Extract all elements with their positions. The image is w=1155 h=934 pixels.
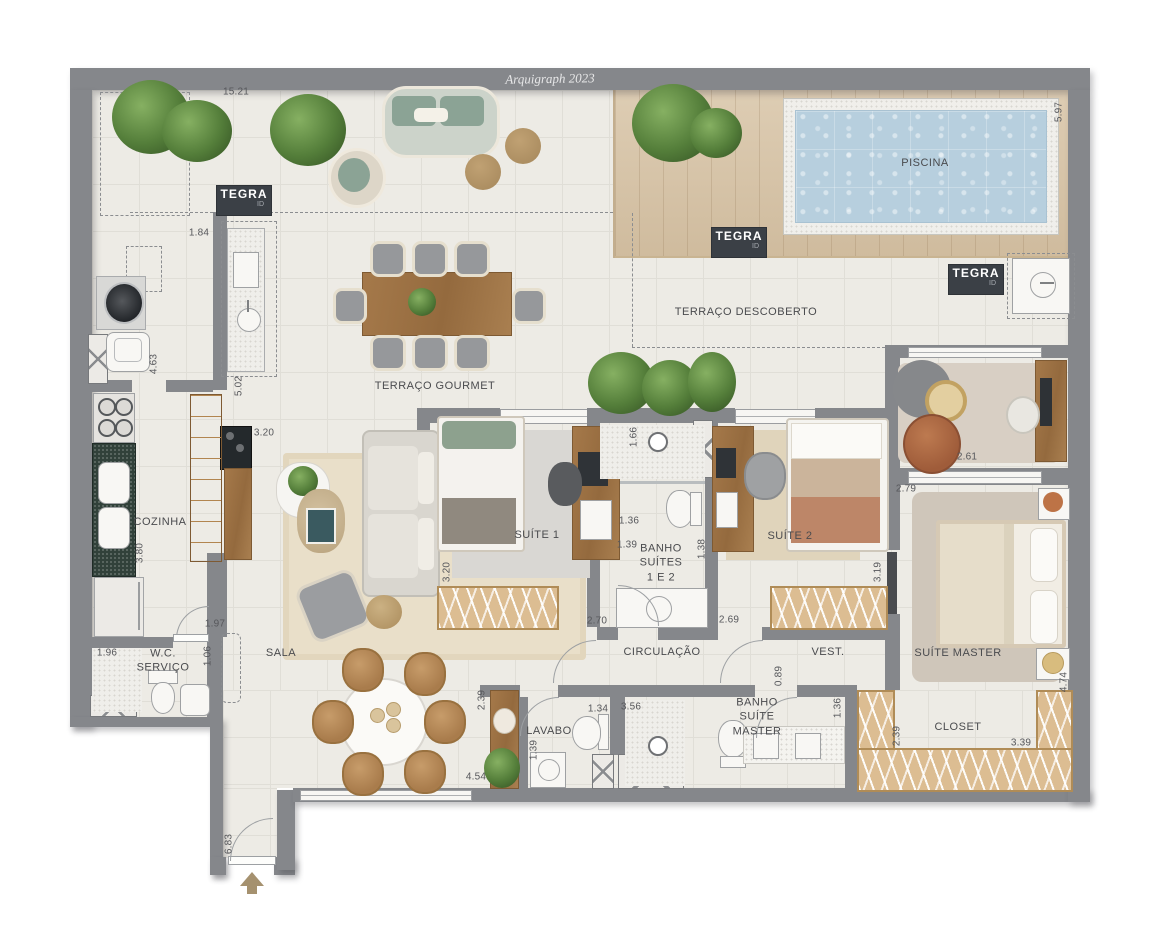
- sink-icon: [98, 507, 130, 549]
- room-label-terraco-gourmet: TERRAÇO GOURMET: [375, 379, 496, 393]
- dim-label: 1.36: [619, 516, 639, 527]
- wall-segment: [166, 380, 213, 392]
- pouf: [366, 595, 402, 629]
- plant-icon: [484, 748, 520, 788]
- wardrobe: [770, 586, 888, 630]
- dim-label: 2.79: [896, 484, 916, 495]
- room-label-wc-servico: W.C. SERVIÇO: [137, 647, 190, 676]
- cup: [370, 708, 385, 723]
- projection-line: [632, 213, 633, 347]
- shower-head-icon: [648, 736, 668, 756]
- fridge-handle: [138, 582, 140, 630]
- brand-id: ID: [712, 243, 766, 250]
- room-label-vest: VEST.: [811, 645, 844, 659]
- dim-label: 3.19: [873, 562, 884, 582]
- wall-segment: [845, 690, 857, 788]
- blanket-fold: [1004, 524, 1014, 644]
- dim-label: 4.63: [149, 354, 160, 374]
- dining-chair: [333, 288, 367, 324]
- toilet-icon: [572, 716, 601, 750]
- dim-label: 2.39: [892, 726, 903, 746]
- sofa-pillow: [418, 518, 434, 570]
- island-sink: [237, 308, 261, 332]
- wicker-chair: [404, 652, 446, 696]
- wall-segment: [70, 717, 223, 727]
- sink-icon: [180, 684, 210, 716]
- sink-icon: [795, 733, 821, 759]
- tegra-logo: TEGRA ID: [712, 228, 766, 257]
- tegra-logo: TEGRA ID: [217, 186, 271, 215]
- dining-chair: [512, 288, 546, 324]
- counter: [224, 468, 252, 560]
- dim-label: 6.83: [224, 834, 235, 854]
- wall-segment: [597, 627, 618, 640]
- sink-icon: [538, 759, 560, 781]
- dim-label: 2.69: [719, 615, 739, 626]
- brand-name: TEGRA: [217, 187, 271, 201]
- centerpiece-plant-icon: [408, 288, 436, 316]
- plant-icon: [690, 108, 742, 158]
- plant-icon: [270, 94, 346, 166]
- wall-segment: [210, 727, 223, 875]
- dim-label: 1.39: [529, 740, 540, 760]
- laundry-sink-basin: [114, 338, 142, 362]
- books: [716, 492, 738, 528]
- cabinet-outline: [221, 633, 241, 703]
- toilet-icon: [151, 682, 175, 714]
- sofa-cushion: [368, 446, 418, 510]
- lounge-chair: [903, 414, 961, 474]
- dim-label: 4.54: [466, 772, 486, 783]
- bed-blanket: [791, 459, 880, 497]
- dining-chair: [412, 241, 448, 277]
- dining-chair: [370, 335, 406, 371]
- dining-chair: [412, 335, 448, 371]
- bed-pillow: [442, 421, 516, 449]
- laptop-icon: [716, 448, 736, 478]
- door-leaf-master: [887, 552, 897, 614]
- shower-head-icon: [648, 432, 668, 452]
- burner-icon: [115, 419, 133, 437]
- faucet-icon: [1040, 282, 1054, 284]
- floor-plan: TEGRA ID TEGRA ID TEGRA ID Arquigraph 20…: [0, 0, 1155, 934]
- dim-label: 1.36: [833, 698, 844, 718]
- island-counter: [227, 228, 265, 372]
- window-sitting: [908, 347, 1042, 358]
- closet-wardrobe: [857, 690, 895, 752]
- closet-wardrobe: [1036, 690, 1073, 752]
- bed-pillow: [791, 423, 882, 459]
- desk-chair: [744, 452, 786, 500]
- wall-segment: [277, 790, 295, 870]
- window-sala: [300, 790, 472, 801]
- wicker-chair: [404, 750, 446, 794]
- dining-table: [362, 272, 512, 336]
- sofa-pillow: [418, 452, 434, 504]
- dim-label: 1.34: [588, 704, 608, 715]
- room-label-suite-master: SUÍTE MASTER: [914, 646, 1001, 660]
- wall-segment: [70, 90, 92, 727]
- pouf: [505, 128, 541, 164]
- cup: [386, 718, 401, 733]
- faucet-icon: [247, 300, 249, 312]
- dim-label: 2.70: [587, 616, 607, 627]
- dining-chair: [370, 241, 406, 277]
- brand-id: ID: [949, 280, 1003, 287]
- dim-label: 2.39: [477, 690, 488, 710]
- dim-label: 5.02: [234, 376, 245, 396]
- wardrobe: [437, 586, 559, 630]
- dim-label: 5.97: [1054, 102, 1065, 122]
- hanging-chair-cushion: [338, 158, 370, 192]
- dim-label: 1.39: [617, 540, 637, 551]
- wicker-chair: [312, 700, 354, 744]
- burner-icon: [98, 419, 116, 437]
- brand-id: ID: [217, 201, 271, 208]
- room-label-suite-1: SUÍTE 1: [514, 528, 559, 542]
- room-label-banho-suites: BANHO SUÍTES 1 E 2: [640, 542, 683, 585]
- dim-label: 3.20: [254, 428, 274, 439]
- dim-label: 1.06: [203, 646, 214, 666]
- pantry-cabinet: [190, 394, 222, 562]
- books: [580, 500, 612, 540]
- tv-icon: [1040, 378, 1052, 426]
- nightstand-decor: [1042, 652, 1064, 674]
- closet-wardrobe: [857, 748, 1073, 792]
- dining-chair: [454, 241, 490, 277]
- washer-door: [104, 282, 144, 324]
- dim-label: 1.66: [629, 427, 640, 447]
- dim-label: 1.96: [97, 648, 117, 659]
- door-leaf: [173, 634, 209, 642]
- shaft-icon: [88, 334, 108, 384]
- bed-pillow: [1030, 528, 1058, 582]
- dim-label: 3.39: [1011, 738, 1031, 749]
- wicker-chair: [342, 648, 384, 692]
- sofa-pillow: [414, 108, 448, 122]
- tray: [306, 508, 336, 544]
- dim-label: 2.61: [957, 452, 977, 463]
- room-label-suite-2: SUÍTE 2: [767, 529, 812, 543]
- fridge: [94, 577, 144, 637]
- wicker-chair: [424, 700, 466, 744]
- wall-segment: [558, 685, 610, 697]
- dim-label: 1.84: [189, 228, 209, 239]
- dim-label: 15.21: [223, 87, 249, 98]
- desk-chair: [548, 462, 582, 506]
- wall-segment: [210, 857, 226, 875]
- entry-arrow-stem: [247, 885, 257, 894]
- dim-label: 3.80: [135, 543, 146, 563]
- cooktop-knob: [236, 444, 244, 452]
- projection-line: [130, 212, 613, 213]
- plant-icon: [688, 352, 736, 412]
- bed-pillow: [1030, 590, 1058, 644]
- sofa-cushion: [368, 514, 418, 578]
- pouf: [465, 154, 501, 190]
- burner-icon: [115, 398, 133, 416]
- room-label-banho-suite-master: BANHO SUÍTE MASTER: [733, 696, 782, 739]
- wicker-chair: [342, 752, 384, 796]
- room-label-sala: SALA: [266, 646, 296, 660]
- entry-arrow-icon: [240, 872, 264, 886]
- room-label-lavabo: LAVABO: [526, 724, 571, 738]
- dim-label: 0.89: [774, 666, 785, 686]
- cup: [386, 702, 401, 717]
- burner-icon: [98, 398, 116, 416]
- room-label-cozinha: COZINHA: [134, 515, 187, 529]
- brand-name: TEGRA: [949, 266, 1003, 280]
- dim-label: 3.56: [621, 702, 641, 713]
- room-label-closet: CLOSET: [934, 720, 981, 734]
- bed-blanket: [940, 524, 1010, 644]
- cooktop-knob: [226, 432, 234, 440]
- shaft-icon: [592, 754, 614, 789]
- room-label-circulacao: CIRCULAÇÃO: [623, 645, 700, 659]
- tegra-logo: TEGRA ID: [949, 265, 1003, 294]
- room-label-piscina: PISCINA: [901, 156, 949, 170]
- bed-blanket: [442, 498, 516, 544]
- dining-chair: [454, 335, 490, 371]
- brand-name: TEGRA: [712, 229, 766, 243]
- nightstand-decor: [1043, 492, 1063, 512]
- projection-line: [632, 347, 885, 348]
- dim-label: 4.74: [1059, 672, 1070, 692]
- dim-label: 3.20: [442, 562, 453, 582]
- desk-chair: [1006, 396, 1040, 434]
- wall-segment: [658, 627, 718, 640]
- toilet-tank: [690, 492, 702, 526]
- watermark-signature: Arquigraph 2023: [505, 70, 595, 88]
- room-label-terraco-descoberto: TERRAÇO DESCOBERTO: [675, 305, 817, 319]
- bbq-sink: [1030, 272, 1056, 298]
- dim-label: 1.97: [205, 619, 225, 630]
- shell-decor: [493, 708, 516, 734]
- sink-icon: [98, 462, 130, 504]
- plant-icon: [162, 100, 232, 162]
- dim-label: 1.38: [697, 539, 708, 559]
- island-appliance: [233, 252, 259, 288]
